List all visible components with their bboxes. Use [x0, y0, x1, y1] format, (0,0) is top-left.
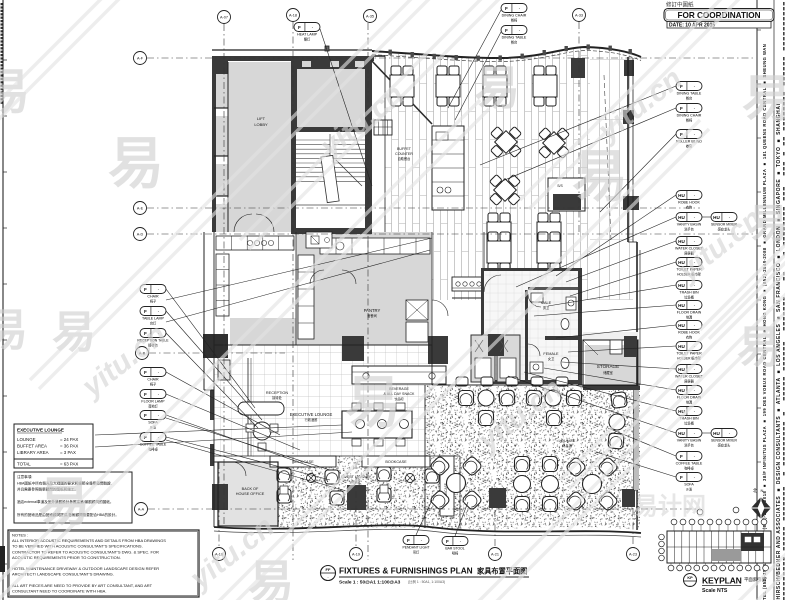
svg-text:椅子: 椅子 — [150, 382, 157, 387]
svg-text:HU: HU — [678, 367, 685, 372]
svg-text:PANTRY: PANTRY — [364, 308, 381, 313]
svg-text:吧椅: 吧椅 — [452, 550, 459, 555]
svg-text:HU: HU — [678, 388, 685, 393]
svg-text:BOOKCASE: BOOKCASE — [292, 460, 314, 464]
svg-text:易: 易 — [742, 71, 785, 127]
svg-text:F: F — [298, 25, 301, 30]
svg-text:TRASH BIN: TRASH BIN — [679, 291, 699, 295]
svg-text:地漏: 地漏 — [686, 400, 692, 405]
svg-text:接待处: 接待处 — [272, 395, 282, 400]
svg-text:= 24 PAX: = 24 PAX — [60, 437, 78, 442]
svg-text:COUNTER: COUNTER — [395, 152, 413, 156]
svg-text:HU: HU — [678, 193, 685, 198]
svg-text:家具布置平面图: 家具布置平面图 — [477, 567, 527, 576]
svg-text:RECEPTION: RECEPTION — [266, 391, 288, 395]
svg-text:N: N — [761, 488, 764, 493]
svg-text:FLOOR DRAIN: FLOOR DRAIN — [677, 311, 702, 315]
svg-text:F: F — [505, 28, 508, 33]
svg-text:LOUNGE: LOUNGE — [559, 438, 576, 443]
svg-text:VANITY BASIN: VANITY BASIN — [677, 439, 702, 443]
svg-text:休息区: 休息区 — [562, 443, 572, 448]
svg-text:洗手台: 洗手台 — [684, 227, 694, 232]
svg-text:易: 易 — [572, 145, 628, 208]
svg-text:垃圾桶: 垃圾桶 — [684, 421, 694, 426]
svg-text:HOUSE OFFICE: HOUSE OFFICE — [236, 492, 265, 496]
svg-text:注意事項:: 注意事項: — [17, 474, 32, 479]
svg-text:A-D: A-D — [137, 232, 144, 236]
svg-text:咖啡桌: 咖啡桌 — [684, 466, 694, 471]
svg-text:KEYPLAN: KEYPLAN — [702, 576, 742, 586]
svg-text:ACOUSTIC REQUIREMENTS PRIOR TO: ACOUSTIC REQUIREMENTS PRIOR TO CONSTRUCT… — [12, 555, 121, 560]
svg-text:F: F — [144, 392, 147, 397]
svg-text:LIBRARY AREA: LIBRARY AREA — [17, 450, 49, 455]
svg-text:SENSOR MIXER: SENSOR MIXER — [711, 439, 738, 443]
svg-text:易计网: 易计网 — [634, 493, 706, 520]
svg-text:Scale 1 : 50@A1 1:100@A3: Scale 1 : 50@A1 1:100@A3 — [339, 580, 401, 586]
svg-text:LOUNGE: LOUNGE — [17, 437, 36, 442]
svg-text:备餐间: 备餐间 — [367, 313, 377, 318]
svg-text:FIXTURES & FURNISHINGS PLAN: FIXTURES & FURNISHINGS PLAN — [339, 566, 473, 576]
svg-text:A-23: A-23 — [629, 552, 637, 556]
svg-text:餐台: 餐台 — [511, 40, 517, 45]
svg-text:ALL ART PIECES ARE NEED TO PRO: ALL ART PIECES ARE NEED TO PROVIDE BY AR… — [12, 583, 153, 588]
svg-text:CHAIR: CHAIR — [147, 295, 159, 299]
svg-text:FLOOR LAMP: FLOOR LAMP — [141, 400, 165, 404]
svg-text:座便器: 座便器 — [684, 379, 694, 384]
svg-text:洗手台: 洗手台 — [684, 443, 694, 448]
svg-text:易: 易 — [38, 474, 90, 532]
svg-text:FF: FF — [326, 567, 331, 572]
svg-text:北: 北 — [753, 487, 758, 494]
svg-text:EXECUTIVE LOUNGE: EXECUTIVE LOUNGE — [290, 412, 333, 417]
svg-text:易: 易 — [345, 371, 401, 434]
svg-text:F: F — [505, 6, 508, 11]
svg-text:自助餐台: 自助餐台 — [398, 156, 411, 161]
svg-text:PENDANT LIGHT: PENDANT LIGHT — [402, 546, 429, 550]
svg-text:= 36 PAX: = 36 PAX — [60, 444, 78, 449]
svg-text:F: F — [407, 538, 410, 543]
svg-text:HU: HU — [678, 283, 685, 288]
svg-text:DINING CHAIR: DINING CHAIR — [502, 14, 527, 18]
svg-text:衣钩: 衣钩 — [686, 335, 692, 340]
svg-text:SOFA: SOFA — [684, 483, 694, 487]
svg-text:Scale NTS: Scale NTS — [702, 588, 728, 594]
svg-text:易: 易 — [108, 132, 164, 195]
svg-text:A-07: A-07 — [220, 15, 228, 19]
svg-text:衣钩: 衣钩 — [686, 205, 692, 210]
svg-text:A-F: A-F — [137, 56, 144, 60]
svg-text:HU: HU — [713, 215, 720, 220]
svg-text:沙发: 沙发 — [686, 487, 693, 492]
svg-text:易: 易 — [0, 306, 28, 355]
svg-text:A-A: A-A — [138, 507, 145, 511]
svg-text:F: F — [446, 539, 449, 544]
svg-text:F: F — [680, 475, 683, 480]
svg-text:BUFFET AREA: BUFFET AREA — [17, 444, 47, 449]
svg-text:餐椅: 餐椅 — [511, 18, 518, 23]
svg-text:F: F — [144, 287, 147, 292]
svg-text:HU: HU — [678, 303, 685, 308]
svg-text:A-35: A-35 — [366, 14, 374, 18]
svg-text:HU: HU — [678, 323, 685, 328]
svg-text:LOBBY: LOBBY — [254, 122, 268, 127]
svg-text:地漏: 地漏 — [686, 315, 692, 320]
svg-text:易: 易 — [52, 308, 96, 357]
svg-text:易: 易 — [474, 62, 520, 114]
svg-text:DINING CHAIR: DINING CHAIR — [677, 114, 702, 118]
svg-text:A-21: A-21 — [491, 552, 499, 556]
svg-text:CHAIR: CHAIR — [147, 378, 159, 382]
svg-text:KP: KP — [687, 576, 693, 580]
svg-text:HOTEL MAINTENANCE DRIVEWAY & O: HOTEL MAINTENANCE DRIVEWAY & OUTDOOR LAN… — [12, 566, 159, 571]
svg-text:EXECUTIVE LOUNGE: EXECUTIVE LOUNGE — [17, 428, 64, 433]
svg-text:ALL INTERIOR ACOUSTIC REQUIREM: ALL INTERIOR ACOUSTIC REQUIREMENTS AND D… — [12, 538, 166, 543]
svg-text:修訂中圖紙: 修訂中圖紙 — [666, 1, 694, 9]
svg-text:餐台: 餐台 — [686, 96, 692, 101]
svg-text:ROBE HOOK: ROBE HOOK — [678, 331, 700, 335]
svg-text:餐椅: 餐椅 — [686, 118, 693, 123]
svg-text:HU: HU — [678, 344, 685, 349]
svg-text:= 63 PAX: = 63 PAX — [60, 462, 78, 467]
svg-text:A-E: A-E — [137, 206, 144, 210]
svg-text:HEAT LAMP: HEAT LAMP — [297, 33, 318, 37]
svg-text:BOOKCASE: BOOKCASE — [385, 460, 407, 464]
svg-text:HU: HU — [678, 431, 685, 436]
svg-text:COFFEE TABLE: COFFEE TABLE — [676, 462, 703, 466]
svg-text:FEMALE: FEMALE — [543, 352, 559, 356]
svg-text:F: F — [680, 454, 683, 459]
svg-text:储藏室: 储藏室 — [603, 370, 613, 375]
svg-text:行政酒廊: 行政酒廊 — [305, 417, 319, 422]
svg-text:= 3 PAX: = 3 PAX — [60, 450, 76, 455]
svg-text:易: 易 — [248, 556, 294, 600]
svg-text:易: 易 — [0, 66, 30, 119]
svg-text:落地灯: 落地灯 — [148, 404, 158, 409]
svg-text:BACK OF: BACK OF — [242, 487, 259, 491]
svg-text:垃圾桶: 垃圾桶 — [684, 295, 694, 300]
svg-text:ROBE HOOK: ROBE HOOK — [678, 201, 700, 205]
svg-text:女卫: 女卫 — [548, 356, 555, 361]
svg-text:F: F — [144, 370, 147, 375]
svg-text:HU: HU — [678, 215, 685, 220]
svg-text:LIFT: LIFT — [257, 116, 266, 121]
svg-text:BAR STOOL: BAR STOOL — [445, 547, 464, 551]
svg-text:A-18: A-18 — [289, 13, 297, 17]
svg-text:F: F — [144, 413, 147, 418]
svg-text:感应龙头: 感应龙头 — [718, 442, 732, 447]
svg-text:BUFFET: BUFFET — [397, 147, 412, 151]
svg-text:A-33: A-33 — [575, 13, 583, 17]
svg-text:椅子: 椅子 — [150, 299, 157, 304]
svg-text:DINING TABLE: DINING TABLE — [502, 36, 527, 40]
svg-text:F: F — [680, 106, 683, 111]
svg-text:A-19: A-19 — [352, 552, 360, 556]
svg-text:CONSULTANT NEED TO COORDINATE: CONSULTANT NEED TO COORDINATE WITH HBA. — [12, 589, 106, 594]
svg-text:VANITY BASIN: VANITY BASIN — [677, 223, 702, 227]
svg-text:NOTES :: NOTES : — [12, 533, 28, 538]
svg-text:(比例 1 : 50A1, 1:100A3): (比例 1 : 50A1, 1:100A3) — [408, 579, 445, 584]
svg-text:HU: HU — [713, 431, 720, 436]
svg-text:吊灯: 吊灯 — [413, 549, 420, 554]
svg-text:F: F — [144, 309, 147, 314]
svg-text:CONTRACTOR TO REFER TO ACOUSTI: CONTRACTOR TO REFER TO ACOUSTIC CONSULTA… — [12, 549, 159, 554]
svg-text:暖灯: 暖灯 — [304, 37, 311, 42]
svg-text:HU: HU — [678, 239, 685, 244]
svg-text:易: 易 — [737, 323, 781, 372]
svg-text:TOTAL: TOTAL — [17, 462, 31, 467]
svg-text:S/S: S/S — [557, 184, 563, 188]
